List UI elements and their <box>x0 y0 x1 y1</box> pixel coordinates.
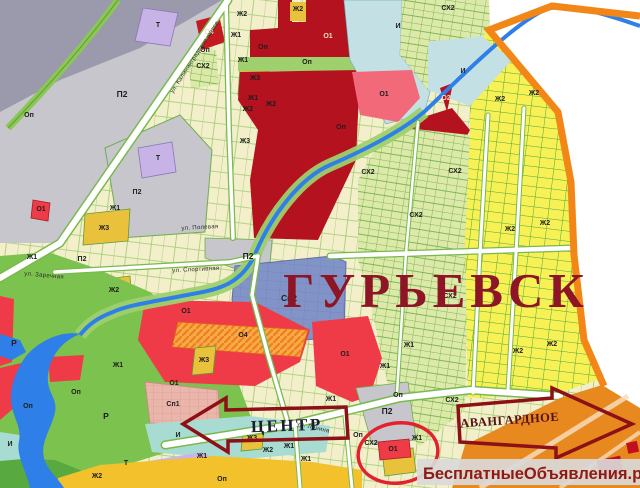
zone-label: Ж2 <box>494 96 505 103</box>
zone-label: СХ2 <box>364 440 377 447</box>
zone-label: Р <box>103 411 109 421</box>
zoning-map-canvas: П2ОпТО4ОпСХ2Ж2Ж1ОпЖ1Ж3Ж1Ж2Ж2Ж3Ж2О1ИОпО1О… <box>0 0 640 488</box>
zone-label: И <box>395 23 400 30</box>
zone-label: П2 <box>382 406 393 416</box>
zone-label: Ж2 <box>242 106 253 113</box>
zone-label: Оп <box>217 476 227 483</box>
zone-label: И <box>175 432 180 439</box>
zone-label: СХ2 <box>445 397 458 404</box>
zone-label: П2 <box>78 256 87 263</box>
zone-label: Оп <box>336 124 346 131</box>
zone-label: Оп <box>24 112 34 119</box>
zone-label: Ж1 <box>196 453 207 460</box>
zone-label: О1 <box>36 206 45 213</box>
center-arrow-label: ЦЕНТР <box>250 415 323 437</box>
zone-label: О2 <box>433 135 442 142</box>
zone-label: Оп <box>23 403 33 410</box>
zone-label: О1 <box>181 308 190 315</box>
zone-label: Т <box>124 460 129 467</box>
zone-shape <box>48 355 84 382</box>
zone-label: Ж3 <box>239 138 250 145</box>
zone-label: СХ2 <box>441 5 454 12</box>
zone-label: Ж3 <box>198 357 209 364</box>
zone-label: Ж1 <box>230 32 241 39</box>
zone-label: СХ2 <box>196 63 209 70</box>
city-title: ГУРЬЕВСК <box>283 263 589 318</box>
zone-shape <box>238 57 362 71</box>
zone-label: Оп <box>302 59 312 66</box>
zone-label: Ж2 <box>91 473 102 480</box>
zone-label: Т <box>156 155 161 162</box>
zone-label: О1 <box>379 91 388 98</box>
zone-label: И <box>460 68 465 75</box>
zone-label: Оп <box>258 44 268 51</box>
zone-label: Ж1 <box>112 362 123 369</box>
zone-label: СХ2 <box>448 168 461 175</box>
zone-label: Ж1 <box>247 95 258 102</box>
zone-label: Ж1 <box>403 342 414 349</box>
zone-label: Оп <box>393 392 403 399</box>
zone-label: СХ2 <box>361 169 374 176</box>
zoning-map-page: П2ОпТО4ОпСХ2Ж2Ж1ОпЖ1Ж3Ж1Ж2Ж2Ж3Ж2О1ИОпО1О… <box>0 0 640 488</box>
watermark-text: БесплатныеОбъявления.рф <box>423 465 640 483</box>
zone-label: Оп <box>353 432 363 439</box>
zone-label: П2 <box>133 189 142 196</box>
watermark: БесплатныеОбъявления.рф <box>417 459 640 485</box>
zone-label: Ж1 <box>325 396 336 403</box>
zone-label: Ж2 <box>236 11 247 18</box>
zone-label: Ж2 <box>108 287 119 294</box>
zone-label: Ж2 <box>512 348 523 355</box>
zone-label: Оп <box>71 389 81 396</box>
zone-label: О1 <box>340 351 349 358</box>
zone-label: Ж1 <box>411 435 422 442</box>
zone-label: О1 <box>388 446 397 453</box>
zone-label: Ж3 <box>249 75 260 82</box>
zone-label: П2 <box>117 89 128 99</box>
zone-label: Т <box>156 22 161 29</box>
zone-label: Сп1 <box>166 401 179 408</box>
zone-label: Ж2 <box>539 220 550 227</box>
zone-label: О2 <box>441 95 450 102</box>
zone-label: Ж1 <box>26 254 37 261</box>
zone-label: Ж2 <box>262 447 273 454</box>
zone-label: Ж1 <box>237 57 248 64</box>
zone-label: Ж1 <box>379 363 390 370</box>
zone-label: О4 <box>238 332 247 339</box>
zone-label: Ж2 <box>546 341 557 348</box>
zone-label: О1 <box>169 380 178 387</box>
zone-label: И <box>7 441 12 448</box>
zone-label: Ж1 <box>283 443 294 450</box>
zone-label: Р <box>11 338 17 348</box>
zone-label: Ж1 <box>300 456 311 463</box>
zone-label: Ж2 <box>504 226 515 233</box>
zone-label: Ж2 <box>265 101 276 108</box>
zone-label: Ж3 <box>98 225 109 232</box>
zone-label: Ж2 <box>528 90 539 97</box>
zone-label: СХ2 <box>409 212 422 219</box>
zone-label: Ж2 <box>292 6 303 13</box>
zone-label: О1 <box>323 33 332 40</box>
zone-label: Ж1 <box>109 205 120 212</box>
zone-label: П2 <box>243 251 254 261</box>
